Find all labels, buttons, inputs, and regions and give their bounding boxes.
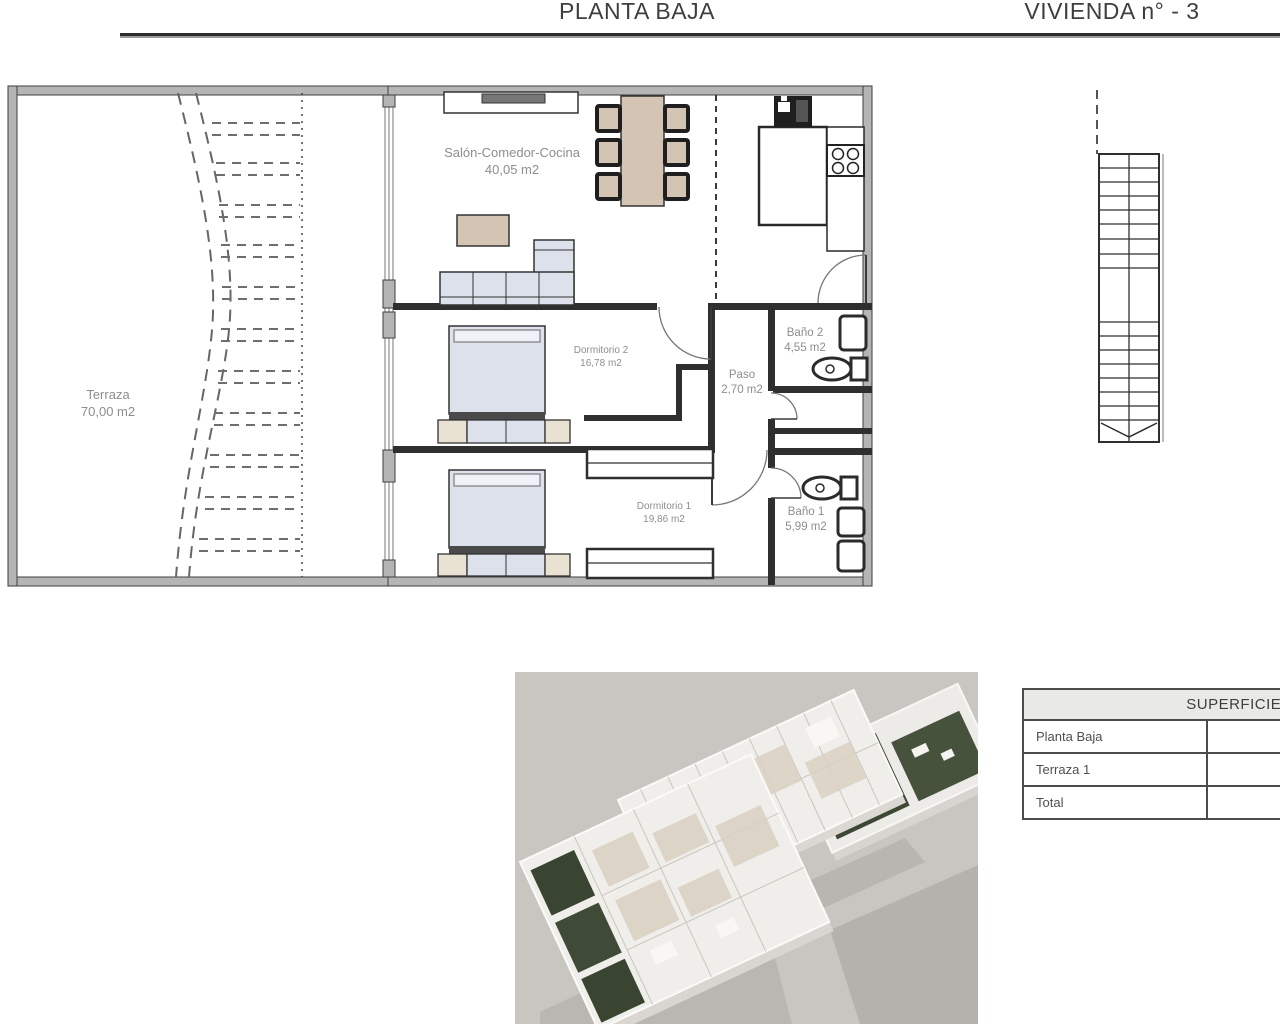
terrace-pergola-slats: [199, 123, 300, 551]
toilet-2: [813, 358, 851, 380]
table-row: Planta Baja: [1024, 721, 1280, 754]
terrace-window-wall: [383, 95, 395, 577]
label-salon: Salón-Comedor-Cocina 40,05 m2: [444, 144, 580, 178]
door-arc-bano1: [771, 468, 801, 498]
label-dormitorio2: Dormitorio 2 16,78 m2: [574, 344, 628, 370]
dining-set: [597, 96, 688, 206]
label-paso: Paso 2,70 m2: [721, 368, 763, 398]
staircase: [1097, 90, 1163, 442]
door-arc-dormitorio2: [659, 307, 711, 359]
door-arc-dormitorio1: [712, 450, 767, 505]
kitchen: [716, 95, 864, 303]
label-terraza: Terraza 70,00 m2: [81, 386, 135, 420]
living-room-furniture: [440, 92, 688, 305]
door-arc-entrance: [818, 255, 866, 303]
table-row-value: [1208, 754, 1280, 785]
kitchen-peninsula: [759, 127, 827, 225]
table-row-label: Total: [1024, 787, 1208, 818]
coffee-table: [457, 215, 509, 246]
sink-2: [840, 316, 866, 350]
label-bano2: Baño 2 4,55 m2: [784, 326, 826, 356]
vanity-2: [838, 541, 864, 571]
table-row-label: Planta Baja: [1024, 721, 1208, 752]
label-dormitorio1: Dormitorio 1 19,86 m2: [637, 500, 691, 526]
stove: [827, 145, 864, 176]
terrace-dashed-curve-1: [176, 93, 213, 577]
nightstand: [545, 420, 570, 443]
toilet-1: [803, 477, 841, 499]
kitchen-sink: [774, 96, 812, 127]
door-arc-utility: [771, 393, 797, 419]
plan-sheet: PLANTA BAJA VIVIENDA n° - 3: [0, 0, 1280, 1024]
nightstand: [545, 554, 570, 576]
table-row-label: Terraza 1: [1024, 754, 1208, 785]
label-bano1: Baño 1 5,99 m2: [785, 505, 827, 535]
tv: [482, 94, 545, 103]
render-3d: [515, 672, 1004, 1024]
sofa: [440, 240, 574, 305]
vanity-1: [838, 508, 864, 536]
nightstand: [438, 420, 467, 443]
terrace-dashed-curve-2: [189, 93, 231, 577]
superficies-table-title: SUPERFICIES: [1024, 690, 1280, 721]
table-row-value: [1208, 787, 1280, 818]
bedroom2-furniture: [438, 326, 570, 443]
table-row: Terraza 1: [1024, 754, 1280, 787]
nightstand: [438, 554, 467, 576]
superficies-table: SUPERFICIES Planta Baja Terraza 1 Total: [1022, 688, 1280, 820]
terrace: [8, 86, 388, 586]
table-row: Total: [1024, 787, 1280, 818]
table-row-value: [1208, 721, 1280, 752]
